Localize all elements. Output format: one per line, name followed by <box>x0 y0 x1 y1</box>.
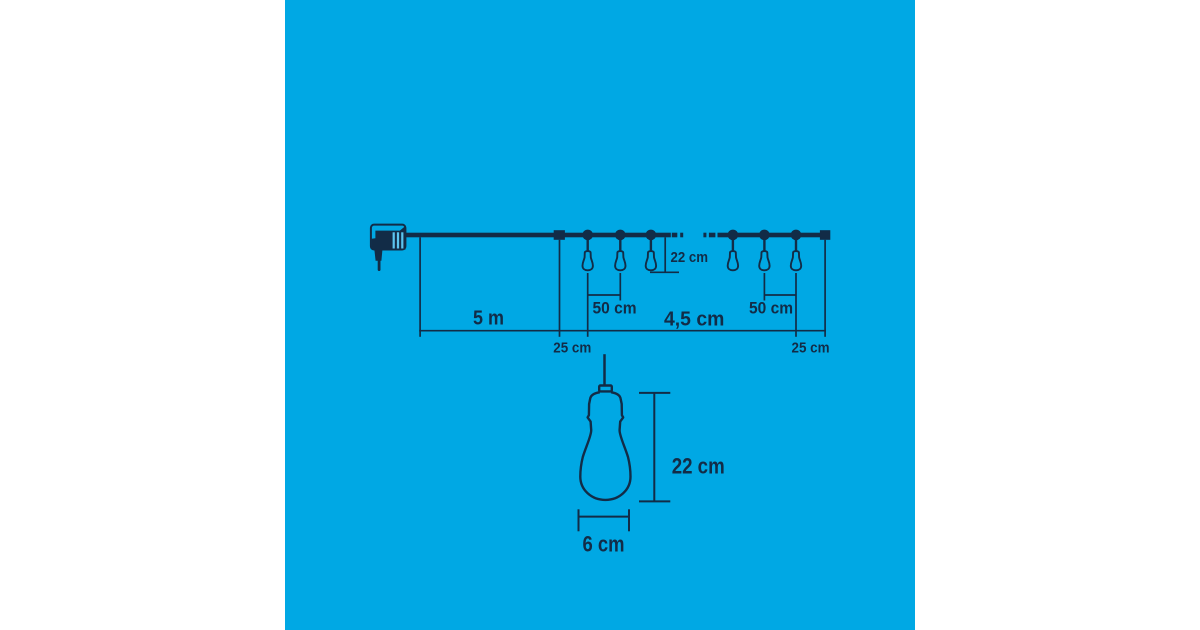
svg-text:22 cm: 22 cm <box>672 454 725 479</box>
svg-text:50 cm: 50 cm <box>749 300 793 318</box>
svg-text:22 cm: 22 cm <box>671 250 709 266</box>
svg-text:25 cm: 25 cm <box>553 339 591 356</box>
svg-text:25 cm: 25 cm <box>792 340 830 357</box>
svg-text:50 cm: 50 cm <box>593 299 637 317</box>
svg-text:6 cm: 6 cm <box>583 531 625 556</box>
svg-text:4,5 cm: 4,5 cm <box>664 308 724 331</box>
svg-text:5 m: 5 m <box>473 307 504 330</box>
